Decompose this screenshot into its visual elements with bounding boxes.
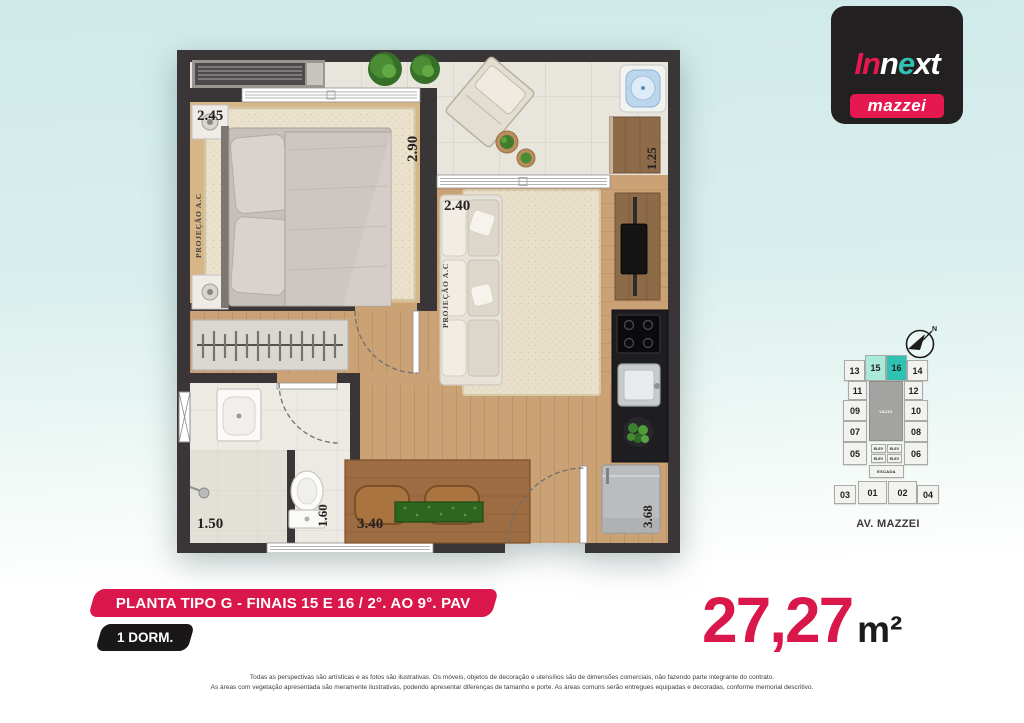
label-kitchen-depth: 3.68	[640, 505, 655, 528]
bathroom-sink	[217, 389, 261, 441]
keyplan-unit-12: 12	[904, 381, 923, 400]
kitchen-counter	[612, 310, 668, 462]
area-value: 27,27	[702, 588, 852, 652]
keyplan-unit-09: 09	[843, 400, 867, 421]
keyplan-unit-01: 01	[858, 481, 887, 504]
keyplan: 13 15 16 14 11 VAZIO 12 09 10 07 08 ELEV…	[832, 352, 944, 510]
keyplan-elevator-3: ELEV	[871, 454, 886, 463]
brand-subname: mazzei	[850, 94, 944, 118]
plan-title-banner: PLANTA TIPO G - FINAIS 15 E 16 / 2°. AO …	[88, 589, 499, 617]
brand-name: Innext	[831, 48, 963, 79]
bed	[192, 105, 391, 309]
disclaimer: Todas as perspectivas são artísticas e a…	[0, 673, 1024, 692]
tv-panel	[615, 193, 660, 300]
label-bath-depth: 1.60	[315, 504, 330, 527]
area-total: 27,27 m²	[702, 588, 902, 652]
brand-logo: Innext mazzei	[831, 6, 963, 124]
keyplan-unit-07: 07	[843, 421, 867, 442]
dorm-tag-label: 1 DORM.	[117, 630, 173, 645]
page: 2.45 2.90 PROJEÇÃO A.C 2.40 PROJEÇÃO A.C…	[0, 0, 1024, 723]
ac-unit	[192, 60, 325, 88]
label-ac-projection-living: PROJEÇÃO A.C	[441, 263, 450, 328]
keyplan-unit-13: 13	[844, 360, 865, 381]
disclaimer-line-2: As áreas com vegetação apresentada são m…	[0, 683, 1024, 693]
keyplan-elevator-4: ELEV	[887, 454, 902, 463]
keyplan-unit-06: 06	[904, 442, 928, 465]
label-bedroom-width: 2.45	[197, 108, 223, 124]
label-ac-projection-bedroom: PROJEÇÃO A.C	[194, 193, 203, 258]
living-window	[437, 175, 610, 188]
keyplan-unit-15-highlighted: 15	[865, 355, 886, 381]
duct-shaft	[179, 392, 190, 442]
keyplan-unit-10: 10	[904, 400, 928, 421]
keyplan-core-vazio: VAZIO	[869, 381, 903, 441]
label-dining-width: 3.40	[357, 516, 383, 532]
bedroom-window	[242, 88, 420, 102]
keyplan-unit-04: 04	[917, 485, 939, 504]
keyplan-stairs: ESCADA	[869, 465, 904, 478]
label-bedroom-depth: 2.90	[405, 136, 421, 162]
area-unit: m²	[857, 611, 902, 648]
street-label: AV. MAZZEI	[832, 518, 944, 530]
keyplan-elevator-1: ELEV	[871, 444, 886, 453]
keyplan-unit-05: 05	[843, 442, 867, 465]
label-living-width: 2.40	[444, 198, 470, 214]
wardrobe	[192, 320, 348, 370]
floor-plan: 2.45 2.90 PROJEÇÃO A.C 2.40 PROJEÇÃO A.C…	[177, 50, 680, 553]
keyplan-unit-11: 11	[848, 381, 867, 400]
label-bath-width: 1.50	[197, 516, 223, 532]
keyplan-elevator-2: ELEV	[887, 444, 902, 453]
washing-machine	[620, 65, 666, 112]
keyplan-unit-16-highlighted: 16	[886, 355, 907, 381]
keyplan-unit-14: 14	[907, 360, 928, 381]
dorm-tag: 1 DORM.	[95, 624, 195, 651]
bathroom-window	[267, 543, 433, 553]
label-terrace-depth: 1.25	[644, 147, 659, 170]
keyplan-unit-02: 02	[888, 481, 917, 504]
keyplan-unit-03: 03	[834, 485, 856, 504]
keyplan-unit-08: 08	[904, 421, 928, 442]
disclaimer-line-1: Todas as perspectivas são artísticas e a…	[0, 673, 1024, 683]
plan-title: PLANTA TIPO G - FINAIS 15 E 16 / 2°. AO …	[116, 595, 471, 612]
compass-north-label: N	[932, 326, 937, 333]
